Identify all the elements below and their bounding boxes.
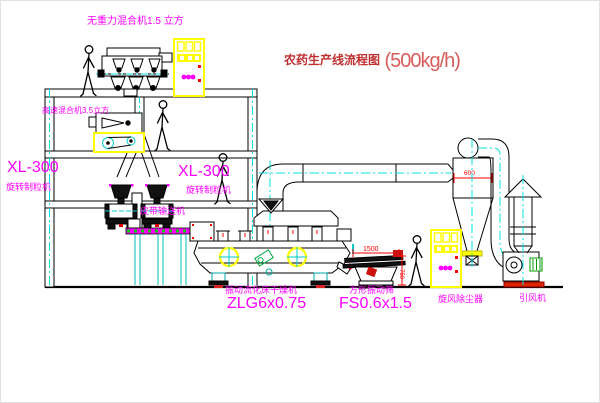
control-cabinet-upper [174, 39, 204, 96]
sieve-name-label: 方形振动筛 [349, 286, 394, 295]
granulator-right-name: 旋转制粒机 [186, 186, 231, 195]
granulator-right-model: XL-300 [178, 164, 230, 180]
dryer-name-label: 振动流化床干燥机 [225, 286, 297, 295]
diagram-title-text: 农药生产线流程图 [284, 53, 380, 67]
fan-label: 引风机 [519, 294, 546, 303]
diagram-title-capacity: (500kg/h) [384, 50, 460, 72]
dryer-model-label: ZLG6x0.75 [227, 296, 306, 312]
diagram-title: 农药生产线流程图 (500kg/h) [284, 50, 460, 73]
gravity-mixer-label: 无重力混合机1.5 立方 [87, 17, 184, 27]
person-ground [409, 236, 424, 286]
granulator-left-model: XL-300 [7, 160, 59, 176]
cad-canvas: 1500 750 600 [0, 0, 600, 403]
belt-conveyor-label: 皮带输送机 [140, 207, 185, 216]
sieve-width-dim-text: 1500 [363, 246, 379, 253]
sieve-model-label: FS0.6x1.5 [339, 296, 412, 312]
person-top-platform [81, 46, 96, 96]
person-floor-2 [155, 101, 170, 151]
high-speed-mixer-drawing [89, 113, 144, 152]
sieve-height-dim-text: 750 [398, 269, 404, 280]
cyclone-label: 旋风除尘器 [438, 295, 483, 304]
sieve-drawing: 1500 750 [343, 244, 406, 288]
dryer-drawing [190, 161, 453, 288]
high-speed-mixer-label: 高速混合机3.5立方 [42, 107, 109, 115]
cyclone-dim-text: 600 [464, 170, 475, 177]
granulator-left-name: 旋转制粒机 [6, 183, 51, 192]
control-cabinet-lower [431, 230, 461, 287]
